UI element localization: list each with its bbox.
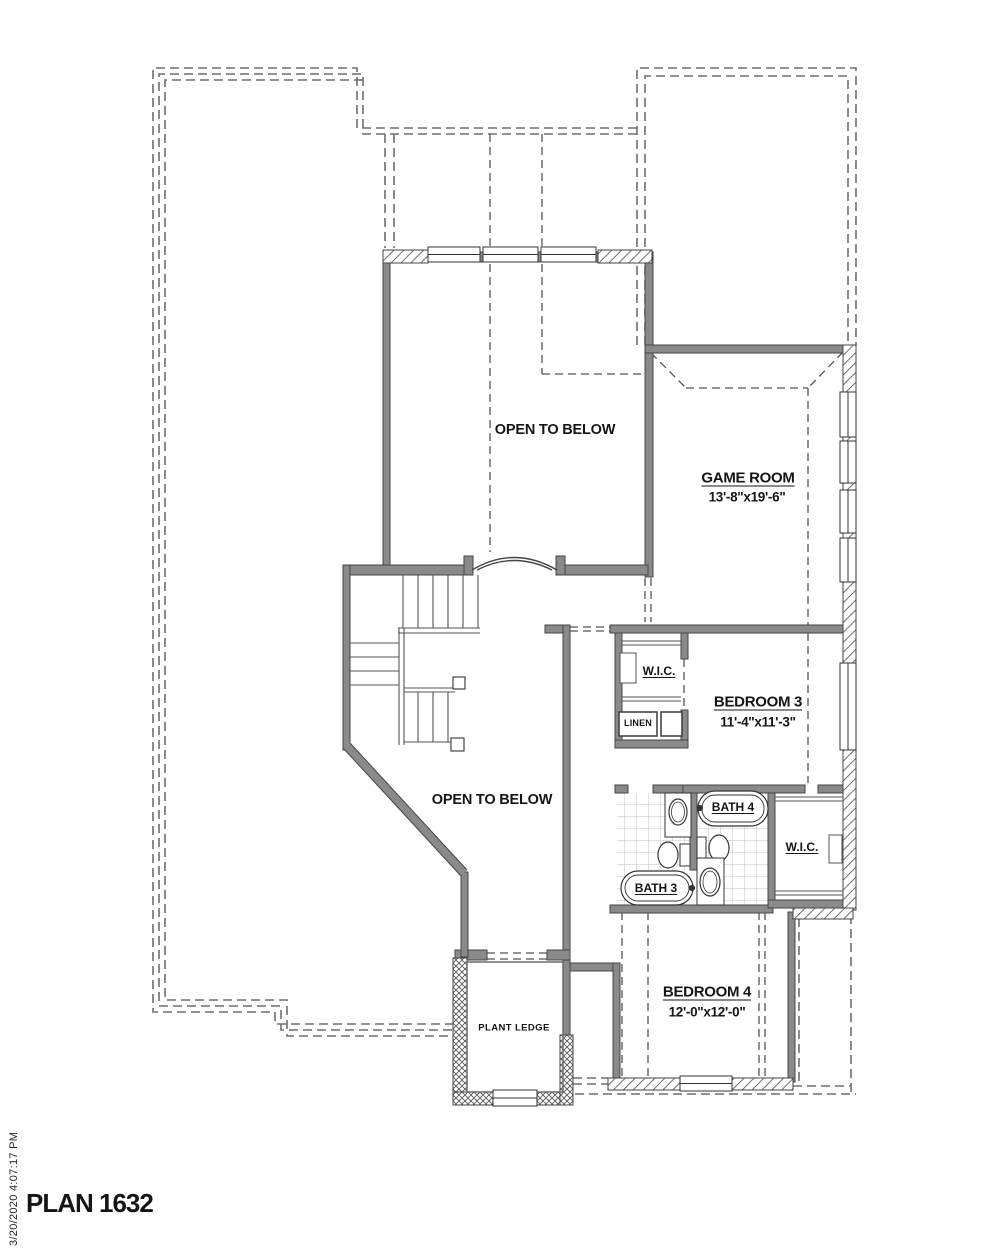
floor-plan-drawing [0, 0, 1000, 1250]
diagonal-wall [344, 743, 467, 876]
print-timestamp: 3/20/2020 4:07:17 PM [8, 1128, 20, 1246]
staircase [350, 575, 480, 751]
room-label-open-to-below-lower: OPEN TO BELOW [432, 792, 552, 808]
room-label-bedroom-4: BEDROOM 4 [663, 984, 751, 1001]
room-dims-game-room: 13'-8"x19'-6" [709, 490, 786, 505]
room-dims-bedroom-3: 11'-4"x11'-3" [720, 715, 795, 730]
floor-plan-page: OPEN TO BELOW OPEN TO BELOW GAME ROOM 13… [0, 0, 1000, 1250]
walls [343, 252, 853, 1082]
room-label-wic-right: W.I.C. [786, 840, 819, 854]
plan-title: PLAN 1632 [26, 1188, 153, 1219]
room-label-bedroom-3: BEDROOM 3 [714, 694, 802, 711]
room-label-wic-upper: W.I.C. [643, 664, 676, 678]
room-label-plant-ledge: PLANT LEDGE [478, 1023, 549, 1034]
room-label-linen: LINEN [624, 718, 652, 728]
arch-opening [472, 558, 557, 571]
room-label-game-room: GAME ROOM [701, 470, 794, 487]
room-label-bath-4: BATH 4 [712, 800, 754, 814]
room-dims-bedroom-4: 12'-0"x12'-0" [669, 1005, 746, 1020]
room-label-bath-3: BATH 3 [635, 881, 677, 895]
roof-outline-dashed [153, 68, 856, 1094]
room-label-open-to-below-upper: OPEN TO BELOW [495, 422, 615, 438]
